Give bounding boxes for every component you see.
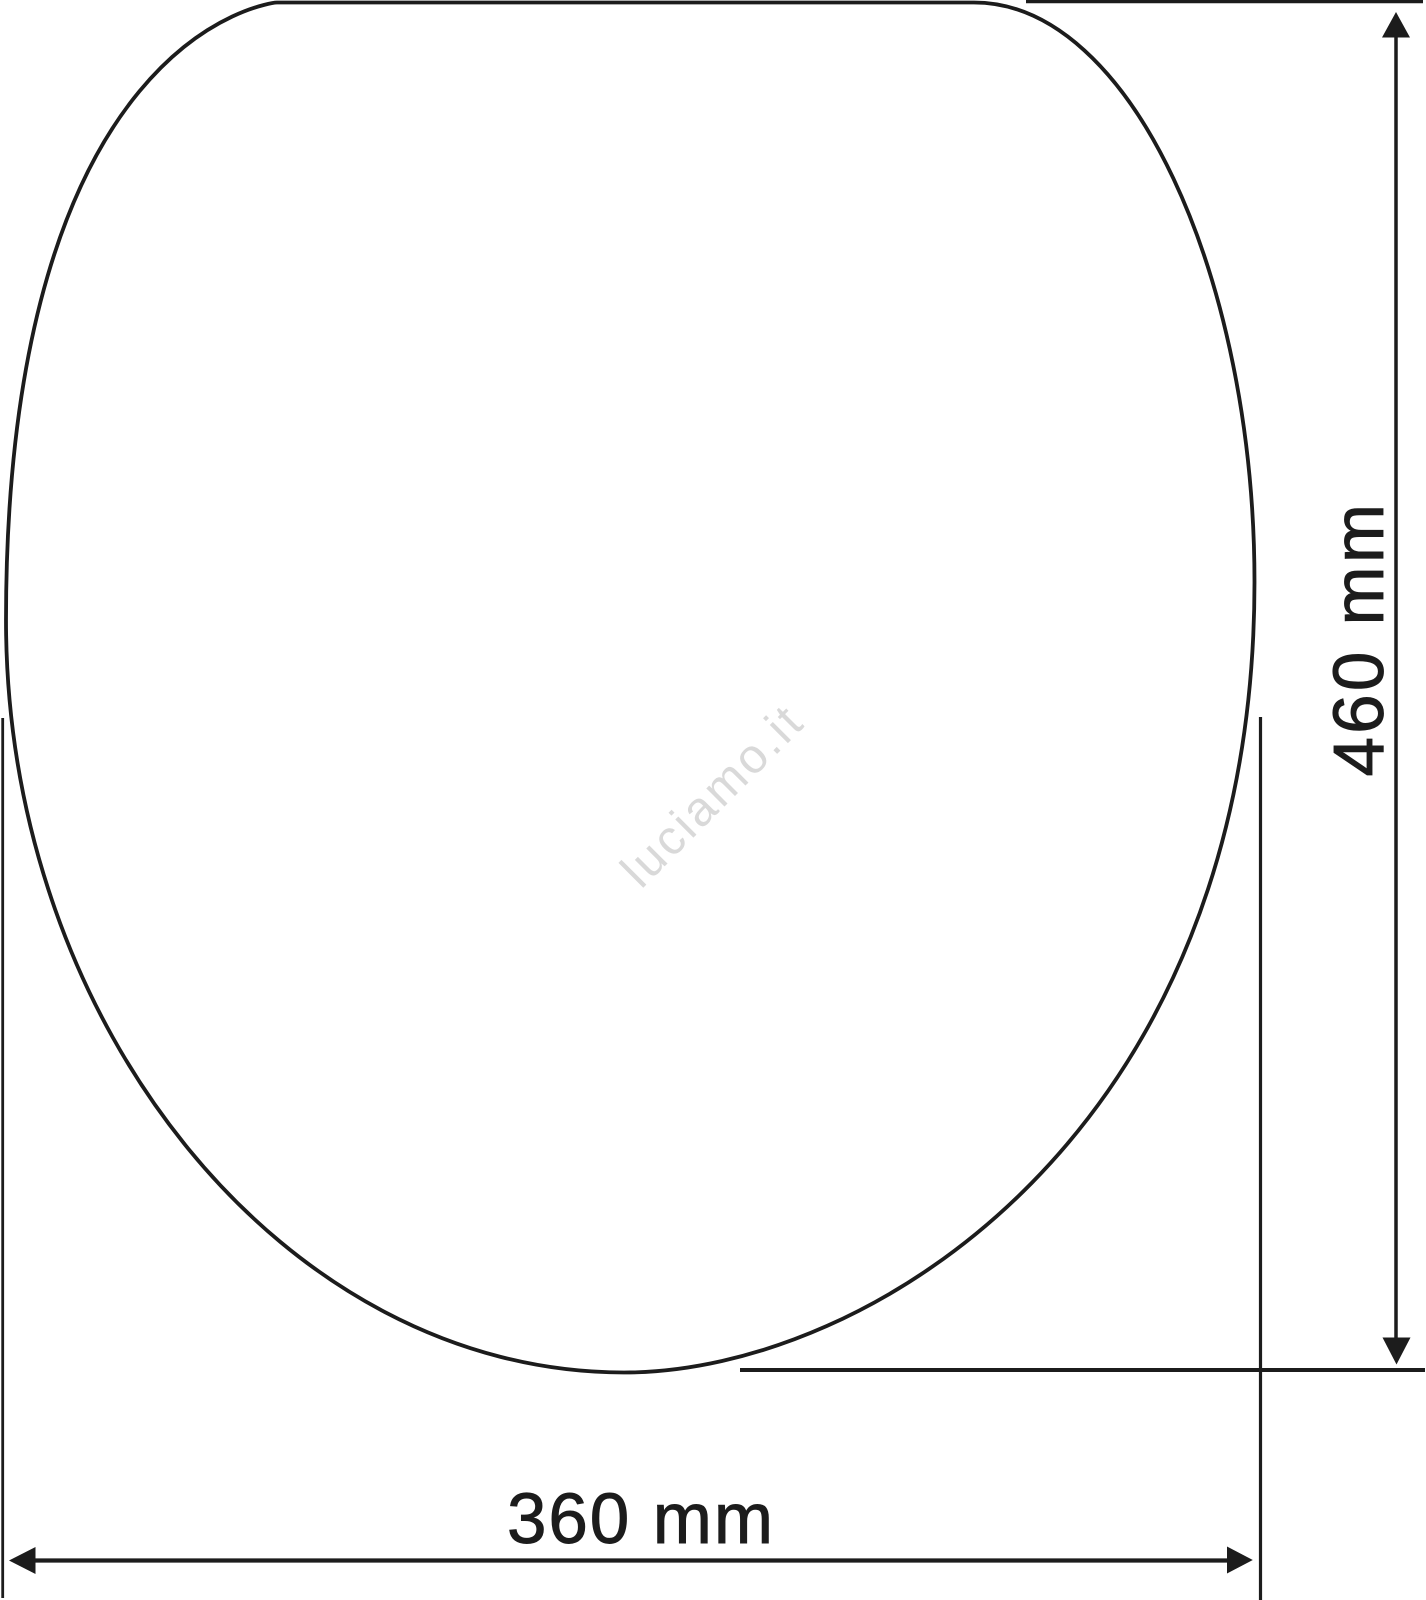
svg-text:460 mm: 460 mm	[1320, 501, 1399, 777]
svg-text:luciamo.it: luciamo.it	[611, 694, 815, 898]
svg-text:360 mm: 360 mm	[507, 1480, 775, 1559]
